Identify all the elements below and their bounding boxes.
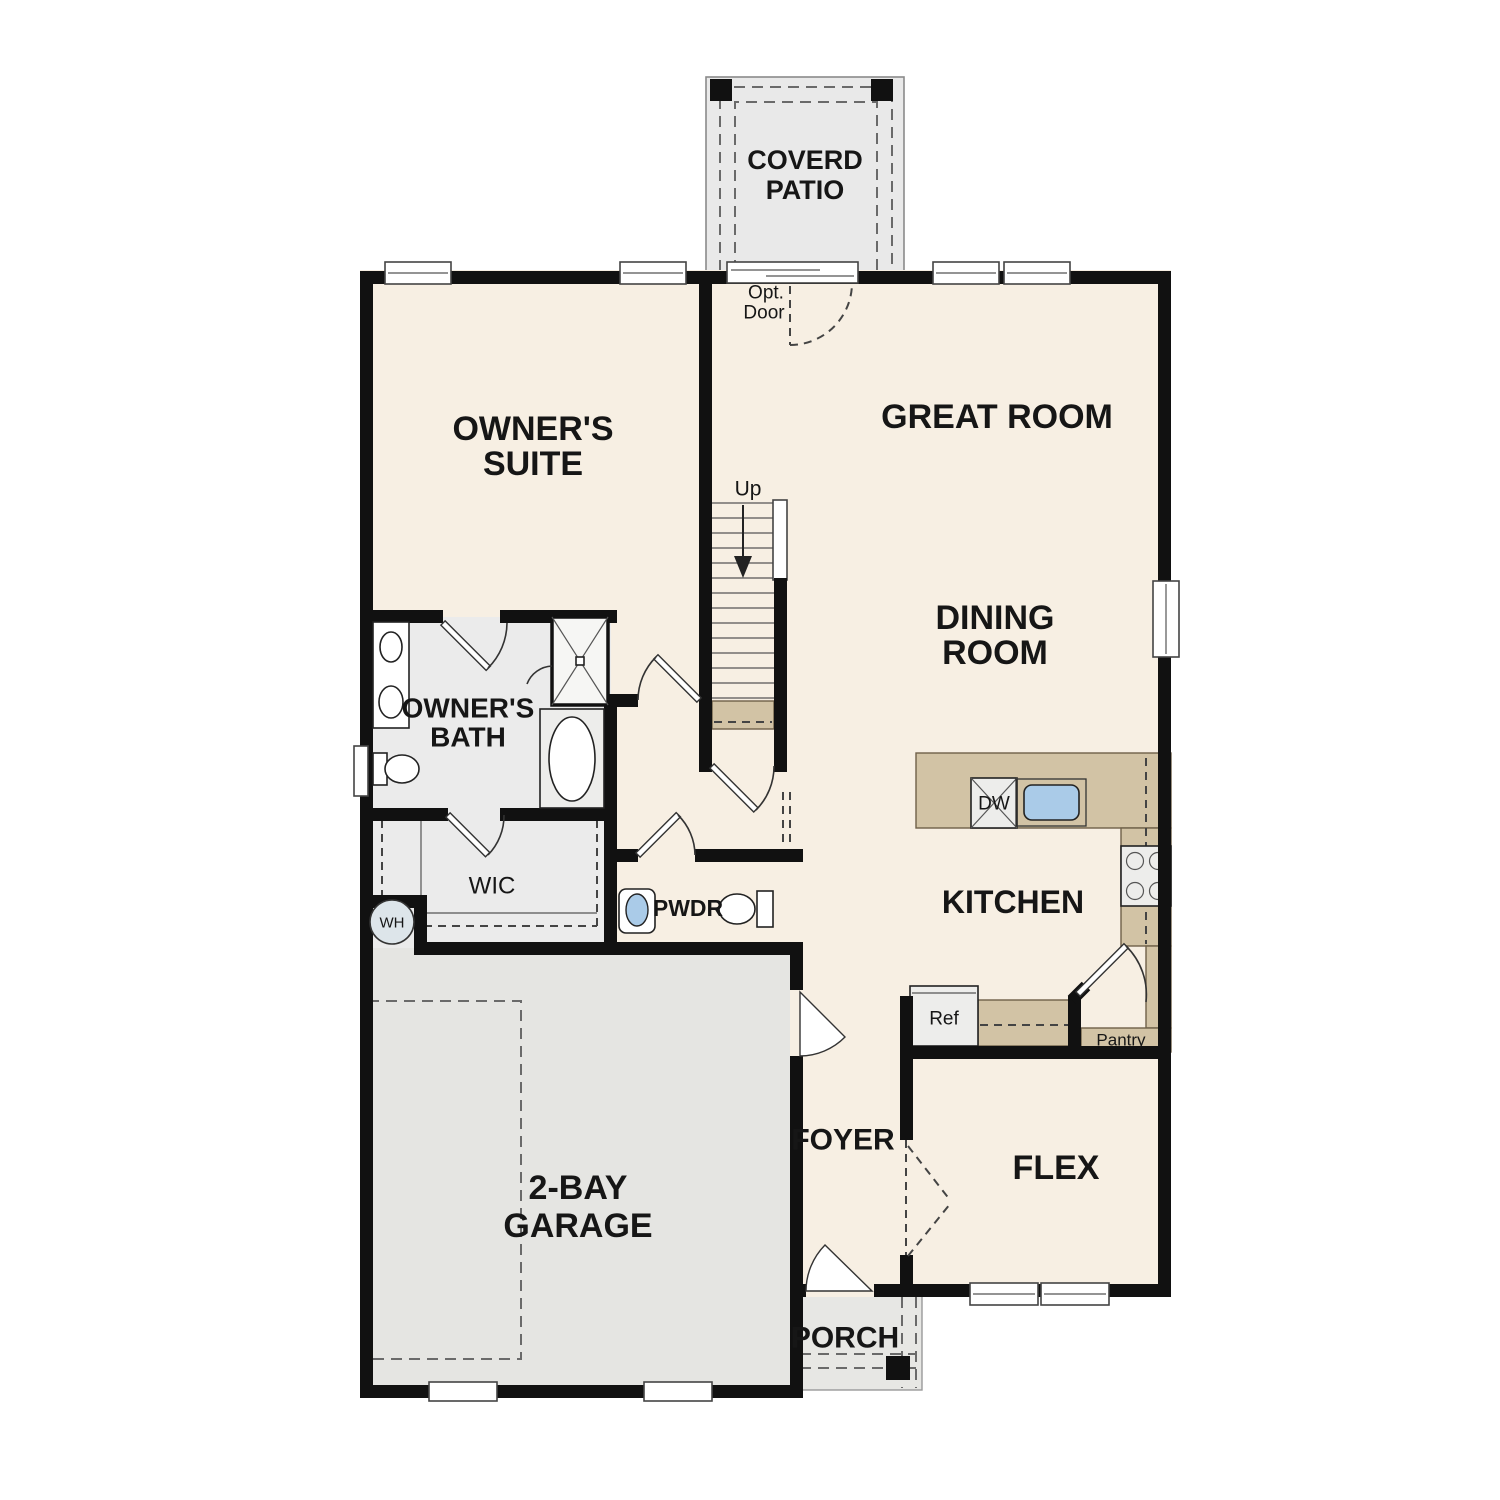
room-label-coverd-patio: PATIO — [766, 175, 845, 205]
annotation-ref: Ref — [929, 1009, 959, 1030]
garage-wall-window — [429, 1382, 497, 1401]
sink-basin — [626, 894, 648, 926]
vanity-sink — [380, 632, 402, 662]
annotation-dw: DW — [978, 794, 1010, 815]
stair-railing — [773, 500, 787, 580]
floor-plan-drawing: COVERD PATIO Opt. Door OWNER'S SUITE GRE… — [0, 0, 1500, 1500]
garage-wall-window — [644, 1382, 712, 1401]
room-label-garage: 2-BAY — [529, 1169, 628, 1207]
floor-plan-page: COVERD PATIO Opt. Door OWNER'S SUITE GRE… — [0, 0, 1500, 1500]
toilet-bowl — [719, 894, 755, 924]
window — [354, 746, 368, 796]
vanity-sink — [379, 686, 403, 718]
kitchen-sink — [1024, 785, 1079, 820]
room-label-dining-room: DINING — [936, 599, 1055, 637]
annotation-opt-door: Door — [743, 303, 785, 324]
room-label-owners-bath: OWNER'S — [402, 693, 535, 724]
patio-post — [871, 79, 893, 101]
room-label-garage: GARAGE — [503, 1207, 652, 1245]
annotation-wh: WH — [380, 915, 405, 932]
toilet-tank — [757, 891, 773, 927]
room-label-great-room: GREAT ROOM — [881, 398, 1113, 436]
shower-drain — [576, 657, 584, 665]
porch-post — [886, 1356, 910, 1380]
room-label-flex: FLEX — [1013, 1149, 1100, 1187]
bathtub — [549, 717, 595, 801]
toilet-bowl — [385, 755, 419, 783]
patio-sliding-door — [727, 262, 858, 283]
patio-post — [710, 79, 732, 101]
annotation-up: Up — [735, 478, 762, 501]
stair-landing — [712, 701, 774, 729]
annotation-pantry: Pantry — [1096, 1031, 1146, 1050]
room-label-porch: PORCH — [791, 1322, 899, 1355]
ref-counter — [978, 1000, 1070, 1046]
annotation-opt-door: Opt. — [748, 283, 784, 304]
room-label-foyer: FOYER — [791, 1124, 895, 1157]
room-label-owners-bath: BATH — [430, 722, 506, 753]
room-label-kitchen: KITCHEN — [942, 884, 1084, 920]
room-label-pwdr: PWDR — [653, 895, 724, 921]
room-label-dining-room: ROOM — [942, 634, 1048, 672]
room-label-wic: WIC — [469, 873, 516, 900]
room-label-owners-suite: OWNER'S — [452, 410, 613, 448]
room-label-owners-suite: SUITE — [483, 445, 583, 483]
room-label-coverd-patio: COVERD — [747, 145, 863, 175]
